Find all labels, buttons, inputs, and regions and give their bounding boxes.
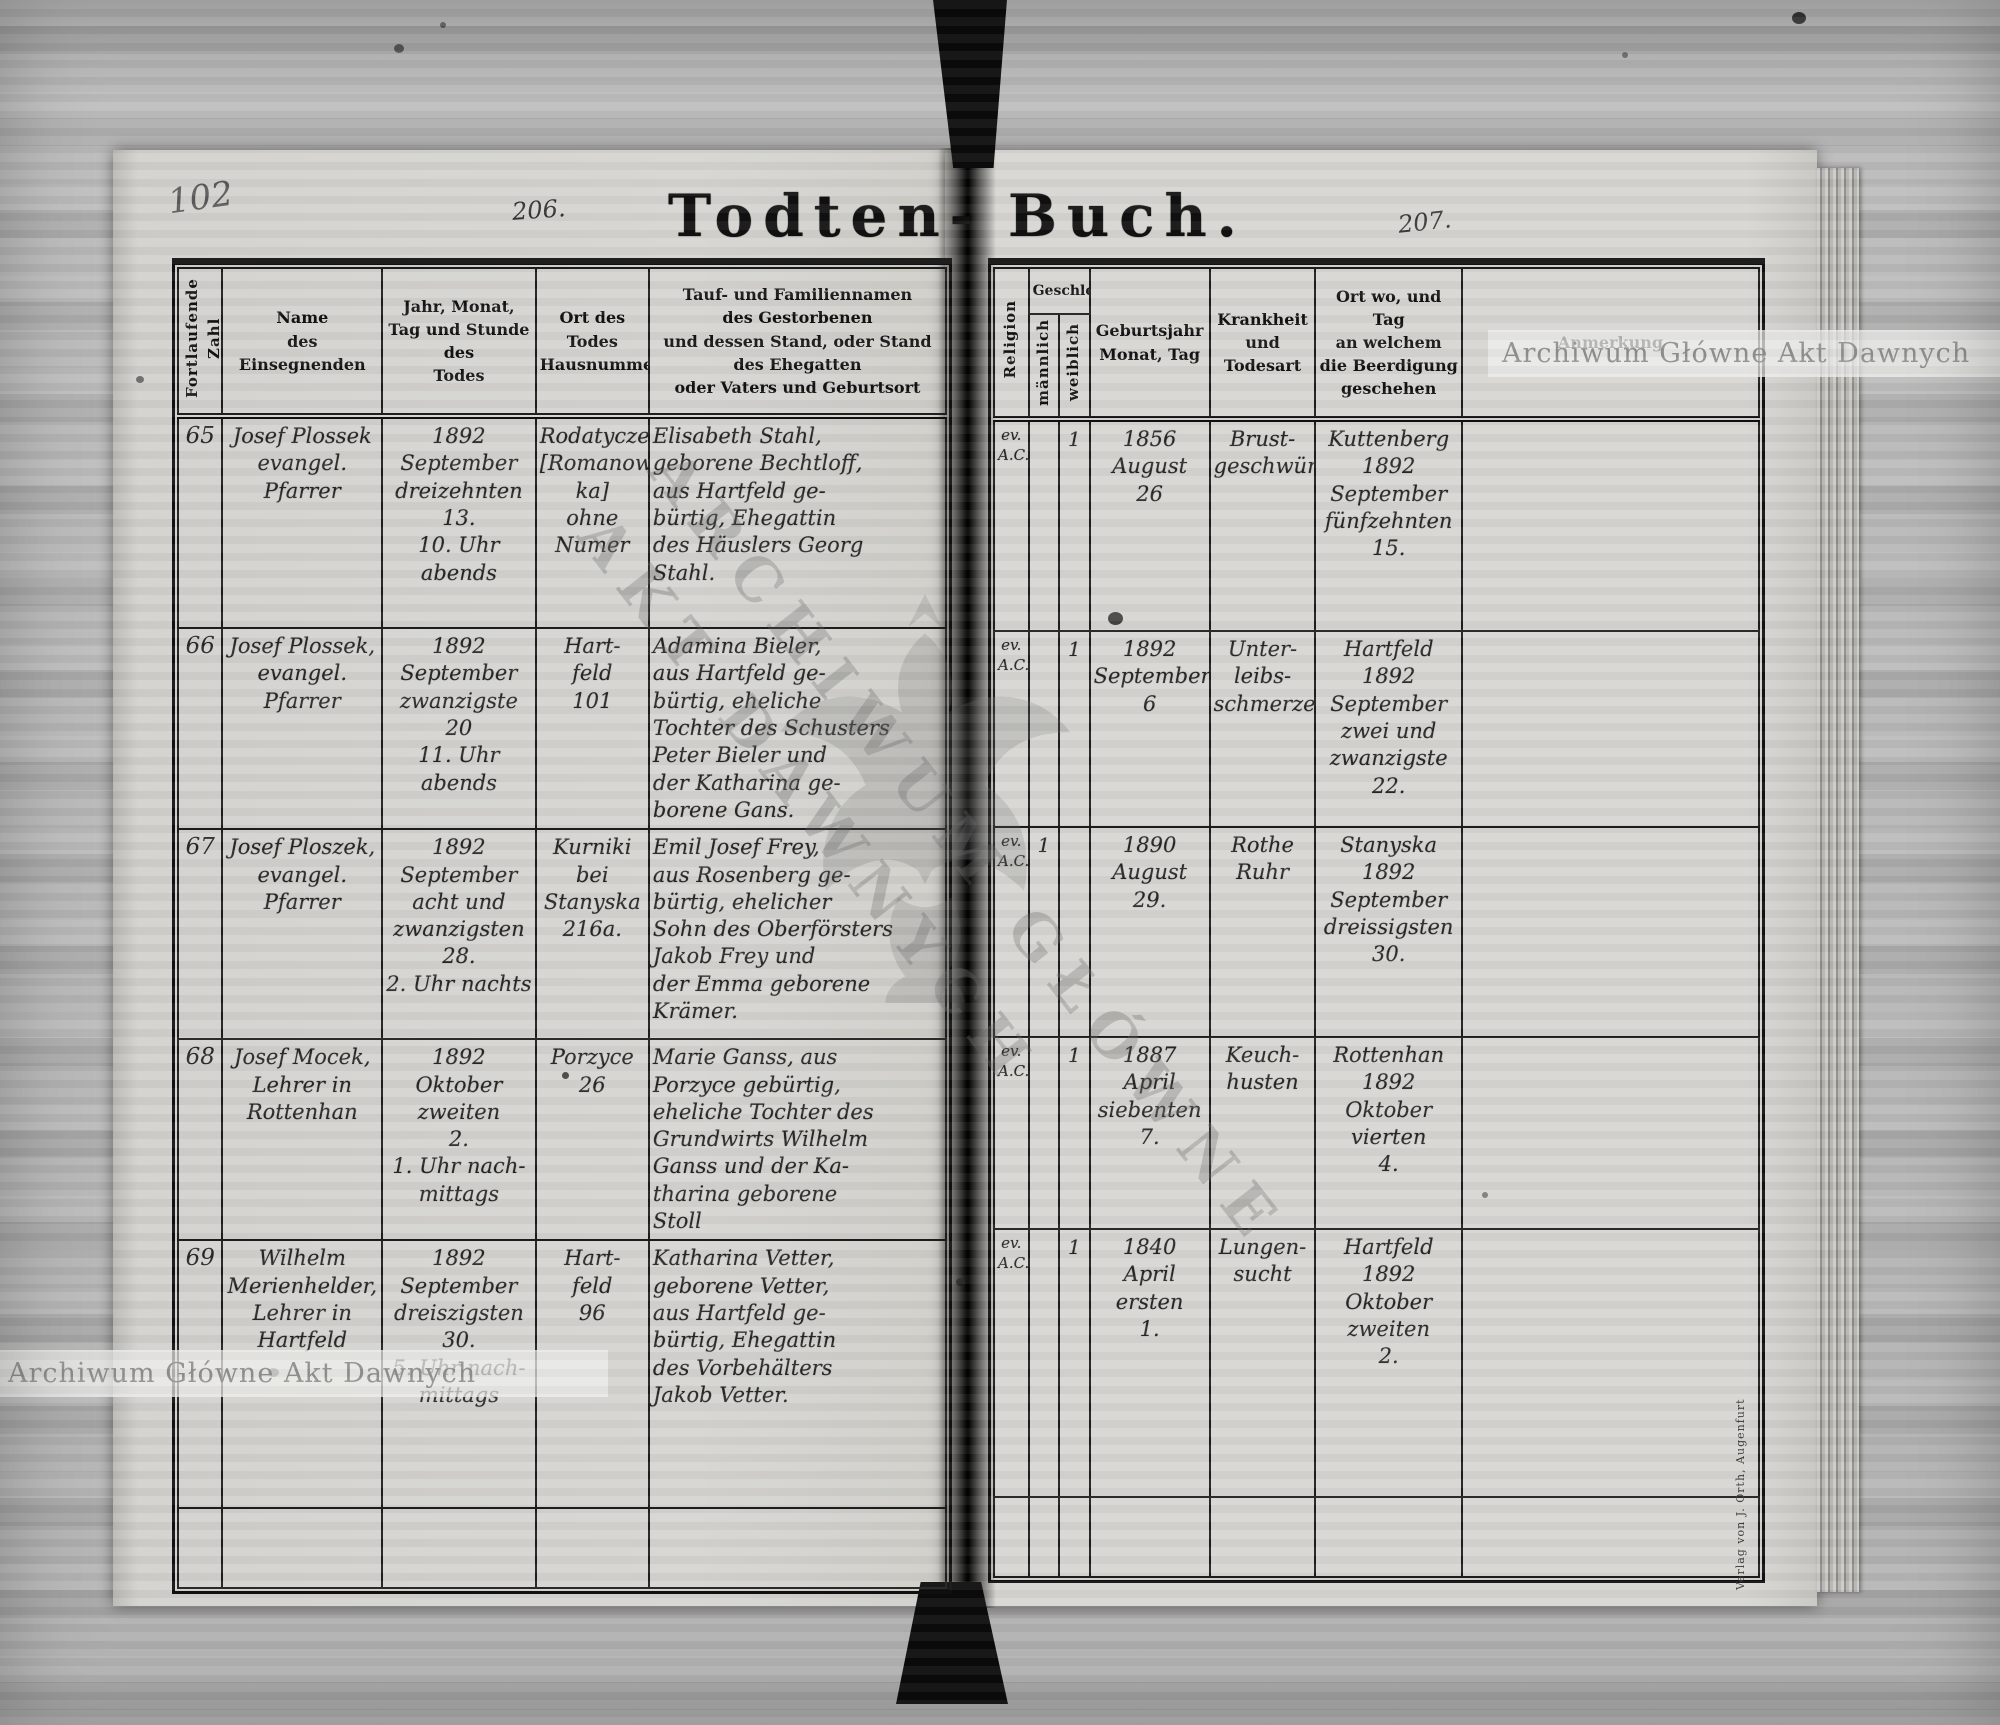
cell-empty <box>1059 1497 1090 1577</box>
cell-empty <box>994 1497 1029 1577</box>
cell-officiant: Josef Plossek evangel. Pfarrer <box>222 416 382 628</box>
cell-birth-date: 1840 April ersten 1. <box>1090 1229 1210 1497</box>
cell-note <box>1462 1037 1759 1229</box>
cell-officiant: Josef Mocek, Lehrer in Rottenhan <box>222 1039 382 1240</box>
col-header-birth-date: Geburtsjahr Monat, Tag <box>1090 268 1210 419</box>
ink-speck <box>394 44 404 53</box>
cell-death-date: 1892 September zwanzigste 20 11. Uhr abe… <box>382 628 536 829</box>
cell-empty <box>222 1508 382 1588</box>
col-header-disease: Krankheit und Todesart <box>1210 268 1316 419</box>
cell-empty <box>1090 1497 1210 1577</box>
table-row-empty <box>178 1508 946 1588</box>
page-stack-edge <box>1817 168 1859 1592</box>
binding-clamp-top <box>928 0 1012 168</box>
cell-disease: Unter- leibs- schmerzen <box>1210 631 1316 827</box>
col-header-female: weiblich <box>1059 314 1090 419</box>
cell-empty <box>1210 1497 1316 1577</box>
ink-speck <box>1622 52 1628 58</box>
table-row: ev. A.C. 1 1856 August 26 Brust- geschwü… <box>994 419 1759 631</box>
cell-burial: Kuttenberg 1892 September fünfzehnten 15… <box>1315 419 1461 631</box>
cell-death-place: Hart- feld 101 <box>536 628 649 829</box>
scanned-death-register: 102 206. 207. Todten- Buch. Fortlaufende… <box>0 0 2000 1725</box>
ink-speck <box>1482 1192 1488 1198</box>
register-title-right: Buch. <box>1008 182 1247 250</box>
printer-imprint: Verlag von J. Orth, Augenfurt <box>1734 1390 1747 1590</box>
cell-note <box>1462 827 1759 1037</box>
cell-empty <box>649 1508 946 1588</box>
cell-male <box>1029 1229 1060 1497</box>
cell-empty <box>1315 1497 1461 1577</box>
ink-speck <box>136 376 144 383</box>
ink-speck <box>440 22 446 28</box>
register-title-left: Todten- <box>668 182 984 250</box>
cell-burial: Rottenhan 1892 Oktober vierten 4. <box>1315 1037 1461 1229</box>
cell-female: 1 <box>1059 1037 1090 1229</box>
cell-disease: Rothe Ruhr <box>1210 827 1316 1037</box>
col-header-religion: Religion <box>994 268 1029 419</box>
cell-number: 67 <box>178 829 222 1039</box>
ink-speck <box>1792 12 1806 24</box>
folio-number-right: 207. <box>1397 205 1453 238</box>
cell-death-date: 1892 Oktober zweiten 2. 1. Uhr nach- mit… <box>382 1039 536 1240</box>
col-header-death-place: Ort des Todes Hausnummer <box>536 268 649 416</box>
cell-death-place: Kurniki bei Stanyska 216a. <box>536 829 649 1039</box>
cell-disease: Lungen- sucht <box>1210 1229 1316 1497</box>
cell-note <box>1462 419 1759 631</box>
col-header-burial: Ort wo, und Tag an welchem die Beerdigun… <box>1315 268 1461 419</box>
cell-burial: Stanyska 1892 September dreissigsten 30. <box>1315 827 1461 1037</box>
cell-death-place: Porzyce 26 <box>536 1039 649 1240</box>
cell-birth-date: 1856 August 26 <box>1090 419 1210 631</box>
cell-officiant: Josef Ploszek, evangel. Pfarrer <box>222 829 382 1039</box>
col-header-male: männlich <box>1029 314 1060 419</box>
cell-empty <box>536 1508 649 1588</box>
col-header-deceased: Tauf- und Familiennamen des Gestorbenen … <box>649 268 946 416</box>
register-table-right: Religion Geschlecht Geburtsjahr Monat, T… <box>988 258 1765 1583</box>
cell-empty <box>1462 1497 1759 1577</box>
cell-note <box>1462 631 1759 827</box>
cell-deceased: Katharina Vetter, geborene Vetter, aus H… <box>649 1240 946 1508</box>
cell-officiant: Josef Plossek, evangel. Pfarrer <box>222 628 382 829</box>
cell-number: 65 <box>178 416 222 628</box>
col-header-death-date: Jahr, Monat, Tag und Stunde des Todes <box>382 268 536 416</box>
cell-female: 1 <box>1059 1229 1090 1497</box>
cell-deceased: Marie Ganss, aus Porzyce gebürtig, eheli… <box>649 1039 946 1240</box>
archive-watermark-bar-top: Archiwum Główne Akt Dawnych <box>1488 330 2000 377</box>
col-header-zahl: Fortlaufende Zahl <box>178 268 222 416</box>
cell-burial: Hartfeld 1892 September zwei und zwanzig… <box>1315 631 1461 827</box>
cell-death-date: 1892 September acht und zwanzigsten 28. … <box>382 829 536 1039</box>
col-header-name: Name des Einsegnenden <box>222 268 382 416</box>
cell-number: 68 <box>178 1039 222 1240</box>
cell-birth-date: 1892 September 6 <box>1090 631 1210 827</box>
cell-note <box>1462 1229 1759 1497</box>
cell-empty <box>382 1508 536 1588</box>
table-row: ev. A.C. 1 1840 April ersten 1. Lungen- … <box>994 1229 1759 1497</box>
cell-death-date: 1892 September dreizehnten 13. 10. Uhr a… <box>382 416 536 628</box>
archive-watermark-bar-bottom: Archiwum Główne Akt Dawnych <box>0 1350 608 1397</box>
cell-religion: ev. A.C. <box>994 1229 1029 1497</box>
col-header-sex: Geschlecht <box>1029 268 1090 314</box>
cell-empty <box>1029 1497 1060 1577</box>
cell-burial: Hartfeld 1892 Oktober zweiten 2. <box>1315 1229 1461 1497</box>
ink-speck <box>956 1278 965 1286</box>
cell-empty <box>178 1508 222 1588</box>
table-row: ev. A.C. 1 1892 September 6 Unter- leibs… <box>994 631 1759 827</box>
ink-speck <box>1108 612 1123 625</box>
table-row-empty <box>994 1497 1759 1577</box>
cell-disease: Brust- geschwüre <box>1210 419 1316 631</box>
folio-number-left: 206. <box>511 194 566 226</box>
ink-speck <box>562 1072 569 1079</box>
cell-number: 66 <box>178 628 222 829</box>
table-row: 68 Josef Mocek, Lehrer in Rottenhan 1892… <box>178 1039 946 1240</box>
